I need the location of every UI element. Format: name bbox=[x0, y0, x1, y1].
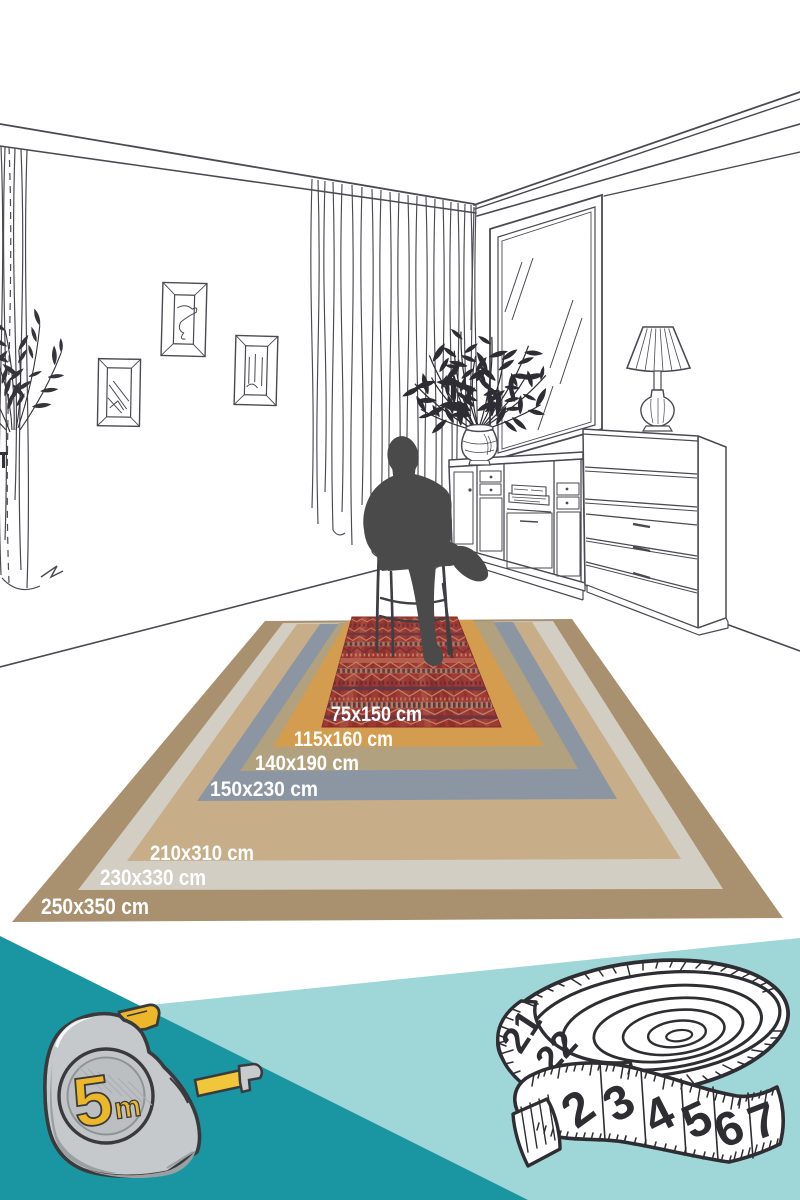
svg-text:140x190 cm: 140x190 cm bbox=[255, 752, 359, 775]
svg-text:m: m bbox=[112, 1090, 143, 1126]
svg-text:210x310 cm: 210x310 cm bbox=[150, 841, 254, 865]
svg-text:150x230 cm: 150x230 cm bbox=[210, 777, 318, 801]
svg-text:75x150 cm: 75x150 cm bbox=[331, 703, 422, 726]
svg-text:230x330 cm: 230x330 cm bbox=[100, 865, 206, 890]
svg-text:250x350 cm: 250x350 cm bbox=[41, 894, 149, 919]
svg-text:115x160 cm: 115x160 cm bbox=[294, 728, 393, 751]
